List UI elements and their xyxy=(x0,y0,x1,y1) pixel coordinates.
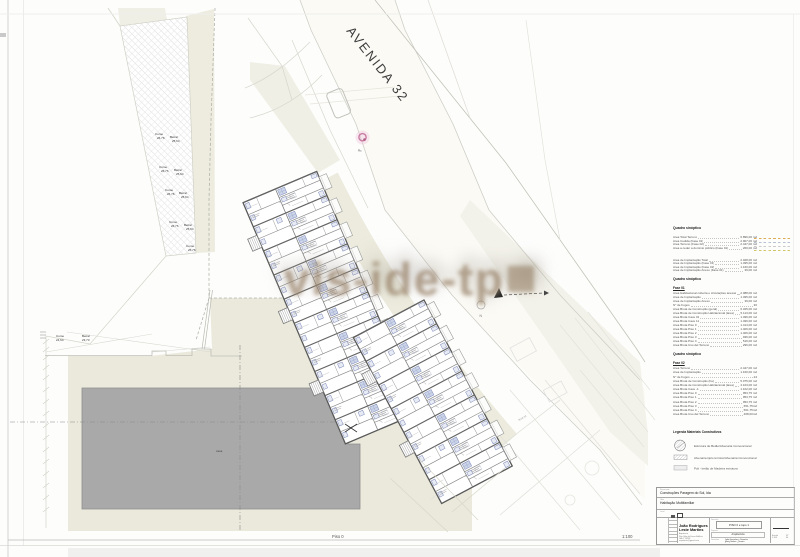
svg-text:Estrutura de Betão/Alvenaria C: Estrutura de Betão/Alvenaria Convenciona… xyxy=(694,444,752,448)
svg-text:Alvenaria tijolo térmico/Alven: Alvenaria tijolo térmico/Alvenaria Conve… xyxy=(694,456,757,460)
svg-text:Poli - betão de Madeira estrut: Poli - betão de Madeira estrutura xyxy=(694,467,738,471)
